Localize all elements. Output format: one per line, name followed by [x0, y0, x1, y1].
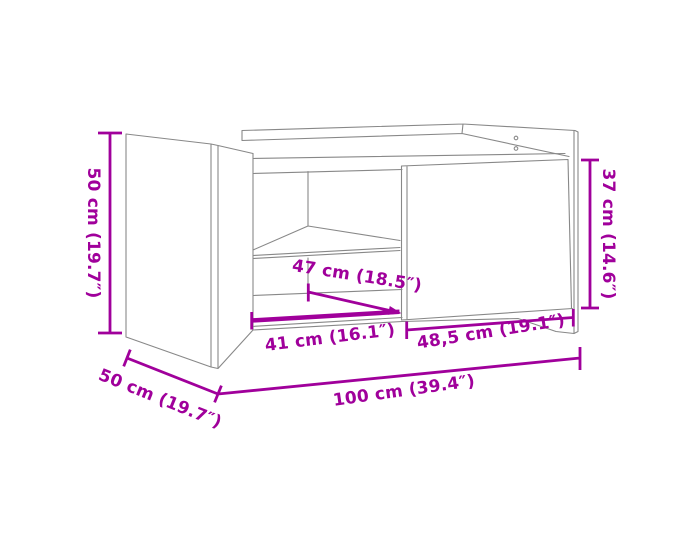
door-front-face [407, 160, 572, 320]
open-shelf-compartment [252, 154, 402, 331]
cam-hole-icon [514, 136, 518, 140]
dimension-label-total-width: 100 cm (39.4″) [332, 371, 476, 411]
dimension-inner-diagonal: 47 cm (18.5″) [291, 256, 423, 315]
dimension-door-height: 37 cm (14.6″) [581, 160, 618, 308]
dimension-inner-width: 41 cm (16.1″) [252, 312, 400, 356]
cam-hole-icon [514, 147, 518, 151]
dimension-label-inner-diagonal: 47 cm (18.5″) [291, 256, 423, 296]
right-side-panel [574, 131, 578, 334]
dimension-label-depth: 50 cm (19.7″) [96, 365, 225, 433]
dimension-line [581, 160, 599, 308]
dimension-height-left: 50 cm (19.7″) [83, 133, 122, 333]
dimension-depth: 50 cm (19.7″) [96, 350, 225, 433]
diagram-stage: 50 cm (19.7″) 37 cm (14.6″) 50 cm (19.7″… [0, 0, 700, 550]
furniture-dimension-diagram: 50 cm (19.7″) 37 cm (14.6″) 50 cm (19.7″… [0, 0, 700, 550]
top-rim [242, 124, 578, 157]
dimension-total-width: 100 cm (39.4″) [215, 347, 580, 411]
arrowhead-icon [388, 306, 402, 315]
left-side-panel [126, 134, 253, 369]
dimension-label-height-left: 50 cm (19.7″) [83, 168, 103, 299]
dimension-label-door-height: 37 cm (14.6″) [598, 169, 618, 300]
